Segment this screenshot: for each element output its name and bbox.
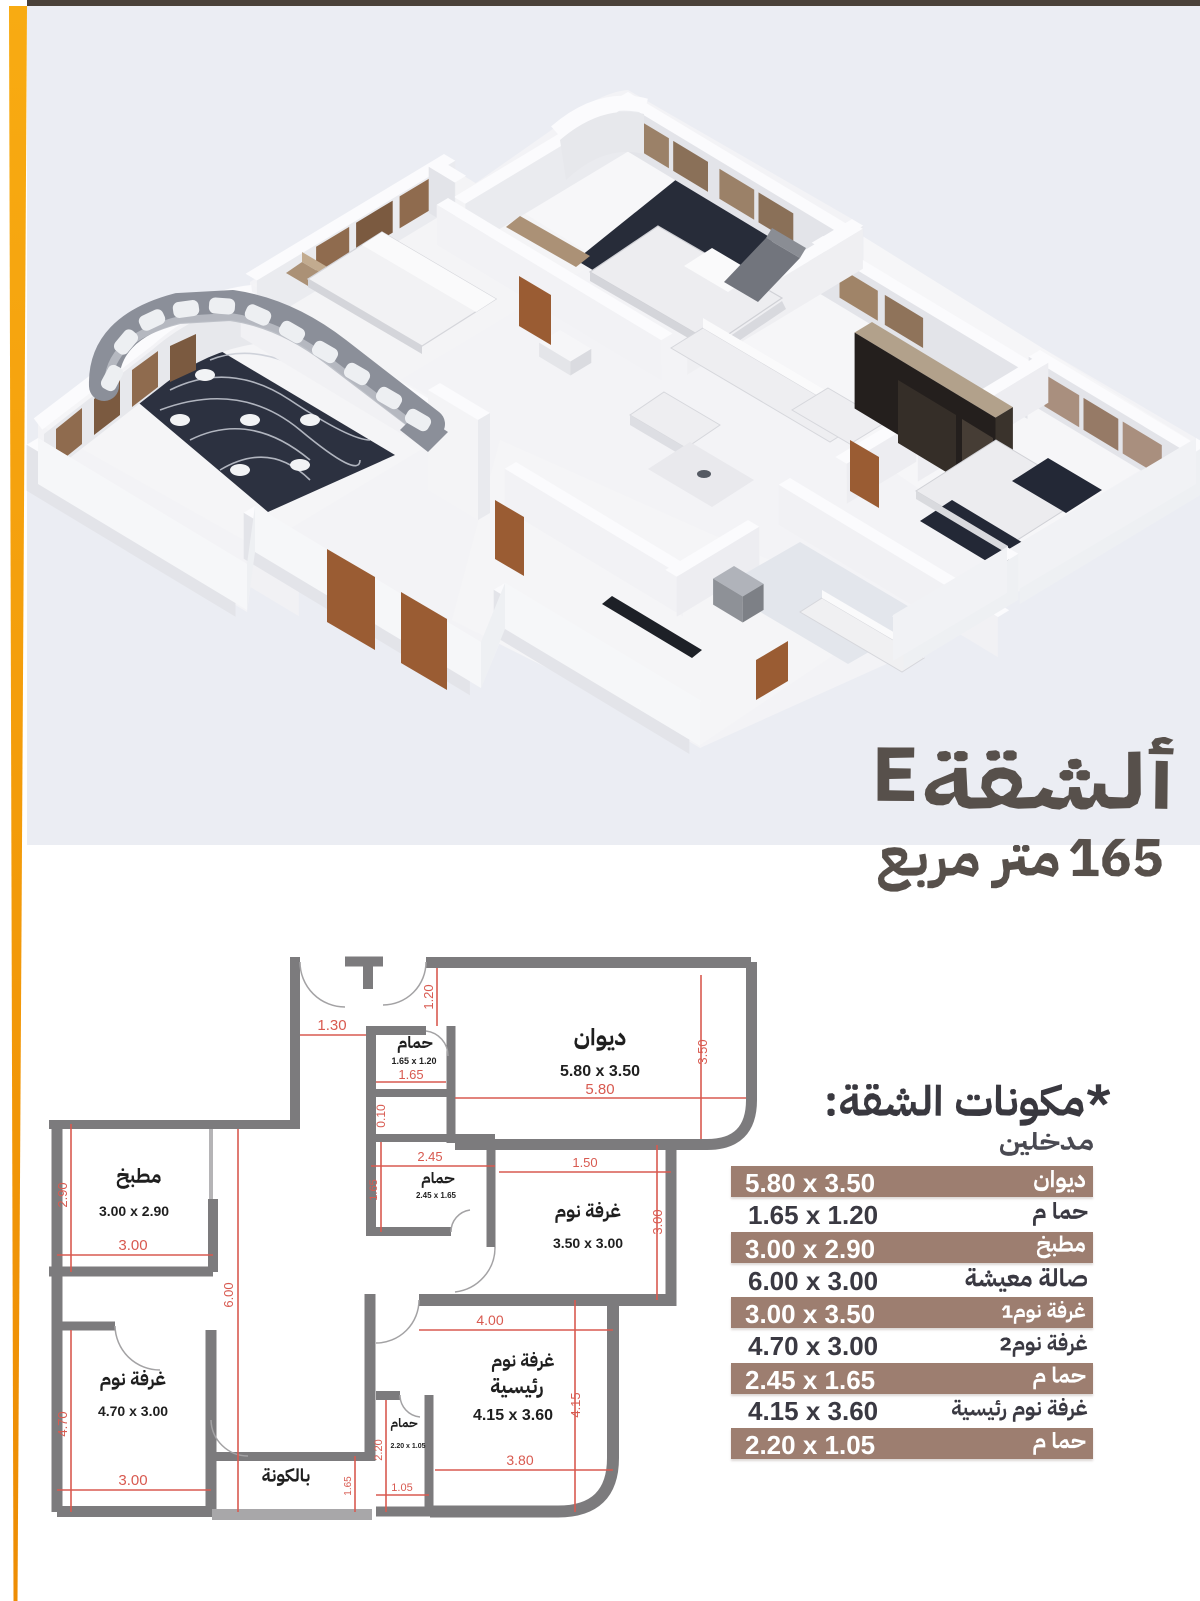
svg-text:2.20 x 1.05: 2.20 x 1.05 xyxy=(390,1443,425,1450)
svg-text:1.65 x 1.20: 1.65 x 1.20 xyxy=(391,1056,436,1066)
svg-text:4.15 x 3.60: 4.15 x 3.60 xyxy=(473,1407,553,1424)
svg-text:5.80 x 3.50: 5.80 x 3.50 xyxy=(560,1063,640,1080)
svg-text:3.50 x 3.00: 3.50 x 3.00 xyxy=(553,1235,623,1251)
svg-text:3.00 x 2.90: 3.00 x 2.90 xyxy=(99,1203,169,1219)
svg-text:4.70 x 3.00: 4.70 x 3.00 xyxy=(98,1403,168,1419)
svg-text:2.45 x 1.65: 2.45 x 1.65 xyxy=(416,1191,457,1200)
